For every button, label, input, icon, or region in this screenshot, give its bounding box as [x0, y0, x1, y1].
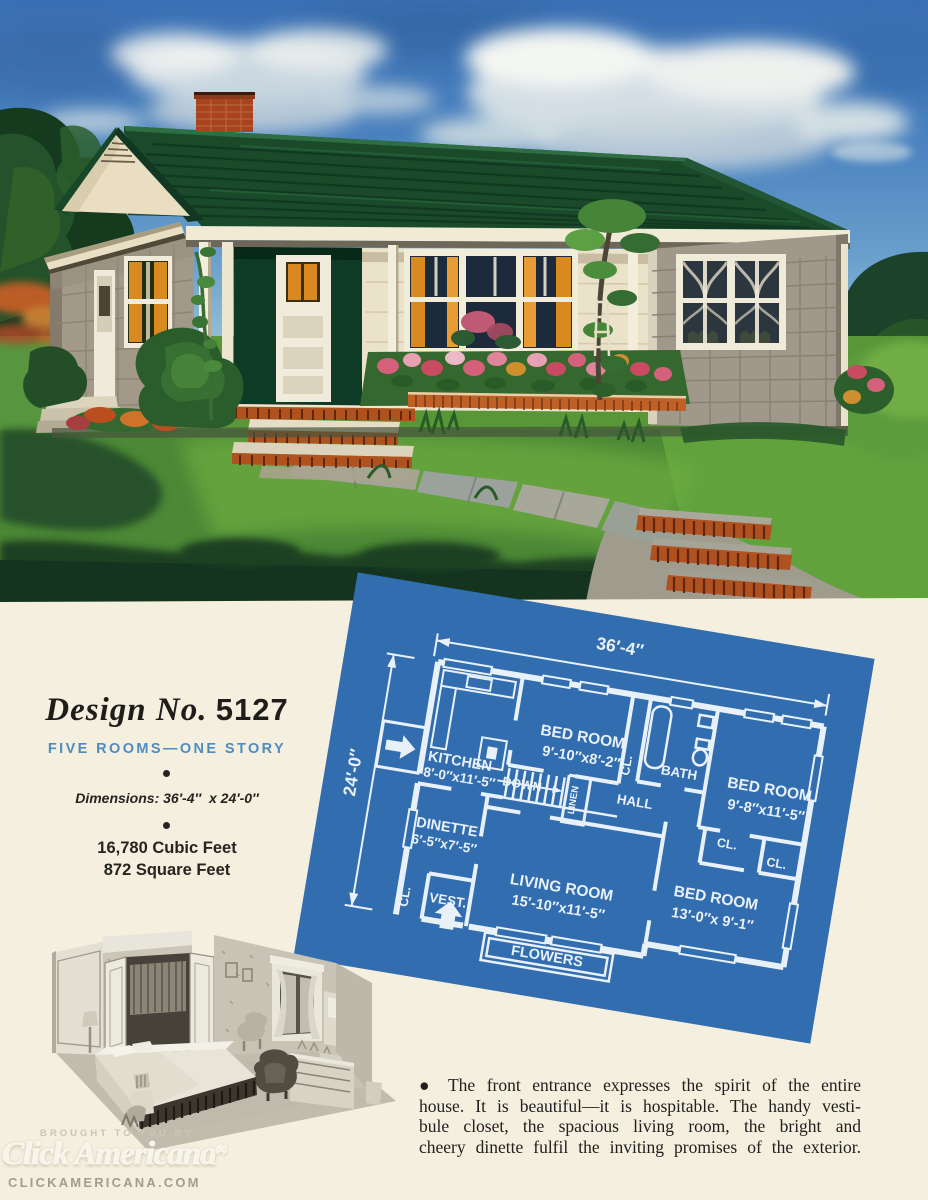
svg-text:DOWN: DOWN [501, 774, 542, 794]
svg-text:VEST.: VEST. [428, 890, 467, 911]
svg-text:CL.: CL. [716, 836, 738, 853]
svg-text:BATH: BATH [660, 762, 698, 783]
svg-text:CL.: CL. [618, 754, 635, 776]
svg-text:HALL: HALL [616, 791, 654, 812]
svg-text:CL.: CL. [765, 855, 787, 872]
svg-text:36′-4′′: 36′-4′′ [595, 633, 645, 661]
svg-text:24′-0′′: 24′-0′′ [339, 747, 367, 797]
svg-text:CL.: CL. [396, 886, 413, 908]
